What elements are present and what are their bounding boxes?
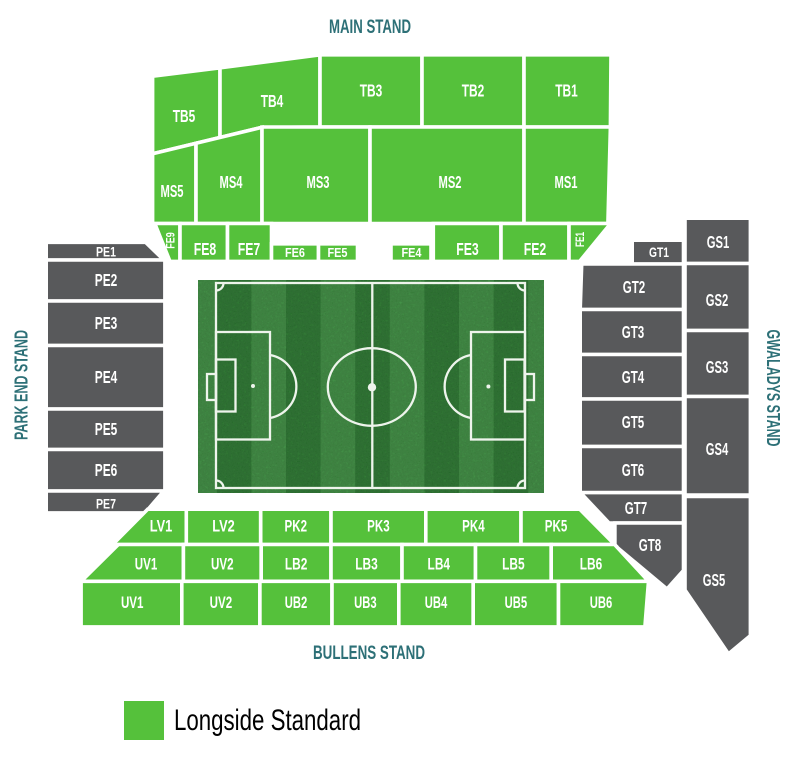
svg-text:PK4: PK4 [462, 517, 485, 536]
svg-text:GWALADYS STAND: GWALADYS STAND [763, 330, 783, 447]
svg-text:GT2: GT2 [623, 277, 646, 297]
svg-text:PE7: PE7 [96, 497, 116, 512]
svg-text:PE5: PE5 [95, 419, 118, 439]
svg-text:FE8: FE8 [194, 239, 217, 259]
svg-text:PK5: PK5 [545, 517, 568, 536]
svg-text:LB4: LB4 [428, 555, 451, 574]
svg-text:GT3: GT3 [622, 322, 645, 342]
svg-text:LV2: LV2 [212, 517, 235, 536]
svg-text:GT7: GT7 [625, 498, 648, 518]
svg-text:GS4: GS4 [706, 439, 729, 459]
svg-text:GT8: GT8 [639, 535, 662, 555]
svg-text:FE9: FE9 [163, 232, 177, 249]
svg-text:PE1: PE1 [96, 245, 116, 260]
svg-text:FE6: FE6 [285, 245, 305, 260]
svg-text:TB2: TB2 [462, 81, 485, 101]
svg-text:TB5: TB5 [173, 106, 196, 126]
svg-text:PK3: PK3 [367, 517, 390, 536]
svg-text:LB3: LB3 [355, 555, 378, 574]
svg-text:FE4: FE4 [402, 245, 423, 260]
svg-text:GT4: GT4 [622, 367, 645, 387]
svg-text:MS3: MS3 [307, 172, 330, 192]
svg-text:TB1: TB1 [555, 81, 578, 101]
svg-text:PE3: PE3 [95, 313, 118, 333]
svg-text:UB4: UB4 [425, 593, 448, 612]
svg-text:UV1: UV1 [121, 593, 144, 612]
svg-text:MS2: MS2 [439, 172, 462, 192]
svg-text:LB5: LB5 [502, 555, 525, 574]
svg-text:MS5: MS5 [161, 181, 184, 201]
svg-text:UB5: UB5 [505, 593, 528, 612]
svg-text:GS2: GS2 [706, 290, 729, 310]
svg-text:FE1: FE1 [573, 232, 587, 247]
svg-text:PE2: PE2 [95, 270, 118, 290]
svg-text:FE5: FE5 [328, 245, 348, 260]
svg-text:LB2: LB2 [285, 555, 308, 574]
svg-text:GS3: GS3 [706, 357, 729, 377]
svg-text:UB2: UB2 [285, 593, 308, 612]
svg-text:GT1: GT1 [649, 245, 669, 260]
svg-text:FE2: FE2 [524, 239, 547, 259]
svg-text:UV1: UV1 [135, 555, 158, 574]
svg-text:MAIN STAND: MAIN STAND [329, 16, 411, 38]
svg-text:LB6: LB6 [580, 555, 603, 574]
svg-text:UV2: UV2 [210, 593, 233, 612]
svg-text:GT5: GT5 [622, 412, 645, 432]
svg-text:PK2: PK2 [285, 517, 308, 536]
svg-text:FE7: FE7 [238, 239, 261, 259]
svg-text:BULLENS STAND: BULLENS STAND [313, 642, 425, 664]
svg-text:LV1: LV1 [150, 517, 173, 536]
svg-text:PE4: PE4 [95, 367, 118, 387]
svg-text:MS1: MS1 [555, 172, 578, 192]
svg-text:UB6: UB6 [590, 593, 613, 612]
svg-text:GS5: GS5 [703, 570, 726, 590]
svg-text:MS4: MS4 [220, 172, 243, 192]
svg-text:Longside Standard: Longside Standard [174, 704, 361, 737]
svg-text:TB3: TB3 [360, 81, 383, 101]
svg-text:GT6: GT6 [622, 460, 645, 480]
svg-text:PE6: PE6 [95, 460, 118, 480]
svg-text:UV2: UV2 [211, 555, 234, 574]
svg-text:GS1: GS1 [707, 232, 730, 252]
svg-text:PARK END STAND: PARK END STAND [12, 330, 32, 440]
svg-text:UB3: UB3 [354, 593, 377, 612]
svg-text:FE3: FE3 [456, 239, 479, 259]
svg-text:TB4: TB4 [261, 91, 284, 111]
